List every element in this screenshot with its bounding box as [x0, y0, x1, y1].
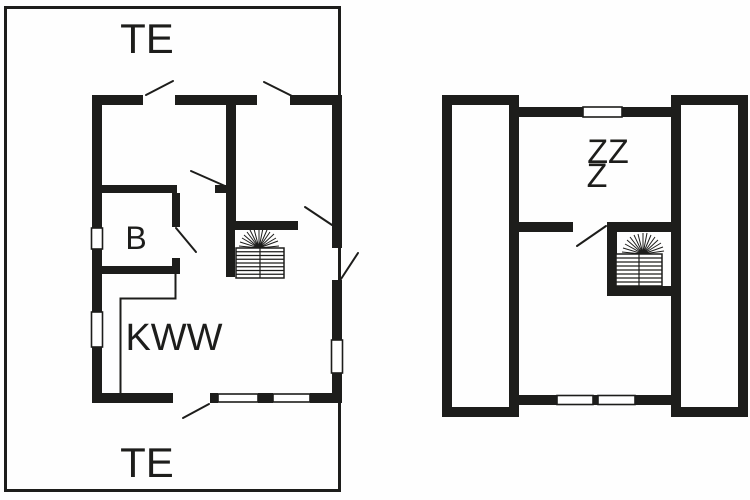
wall-segment: [92, 249, 102, 312]
wall-segment: [226, 105, 236, 230]
door-swing: [341, 253, 358, 279]
door-swing: [191, 171, 225, 186]
wall-segment: [509, 95, 519, 417]
thin-partition-line: [121, 298, 177, 300]
wall-segment: [226, 230, 235, 277]
wall-segment: [210, 393, 218, 403]
window: [273, 394, 310, 402]
upper-floor-door-swings: [577, 226, 606, 246]
room-label-bedrooms-line2: Z: [587, 157, 608, 195]
wall-segment: [332, 95, 342, 248]
thin-partition-line: [120, 298, 122, 394]
room-label-kitchen-living: KWW: [125, 317, 222, 359]
wall-segment: [671, 407, 748, 417]
window: [92, 228, 103, 249]
wall-segment: [310, 393, 342, 403]
wall-segment: [258, 393, 273, 403]
wall-segment: [607, 222, 681, 232]
stair-winder-fan: [239, 228, 279, 248]
wall-segment: [738, 95, 748, 417]
upper-floor-left-wing: [442, 95, 519, 417]
stair-winder-fan: [622, 233, 664, 254]
wall-segment: [622, 107, 671, 117]
door-swing: [183, 404, 209, 418]
window: [583, 107, 622, 117]
wall-segment: [332, 280, 342, 340]
upper-floor-plan: ZZ Z: [442, 95, 748, 417]
wall-segment: [442, 95, 452, 417]
wall-segment: [509, 395, 557, 405]
wall-segment: [175, 95, 257, 105]
wall-segment: [671, 95, 748, 105]
window: [557, 396, 593, 405]
window: [218, 394, 258, 402]
door-swing: [146, 81, 173, 95]
door-swing: [264, 82, 292, 96]
room-label-bathroom: B: [125, 220, 146, 256]
wall-segment: [635, 395, 681, 405]
wall-segment: [92, 266, 180, 274]
wall-segment: [92, 185, 177, 193]
wall-segment: [92, 393, 173, 403]
wall-segment: [172, 193, 180, 227]
room-label-terrace-top: TE: [120, 15, 174, 62]
staircase-icon: [236, 228, 284, 278]
upper-floor-right-wing: [671, 95, 748, 417]
door-swing: [577, 226, 606, 246]
wall-segment: [442, 407, 519, 417]
wall-segment: [509, 222, 573, 232]
terrain-boundary: [6, 8, 340, 491]
door-swing: [305, 207, 332, 225]
staircase-icon: [616, 233, 664, 286]
window: [92, 312, 103, 347]
window: [598, 396, 635, 405]
thin-partition-line: [175, 274, 177, 299]
wall-segment: [519, 107, 583, 117]
room-label-terrace-bottom: TE: [120, 439, 174, 486]
wall-segment: [92, 95, 102, 228]
window: [332, 340, 343, 373]
wall-segment: [607, 286, 681, 296]
wall-segment: [226, 221, 298, 230]
wall-segment: [671, 95, 681, 417]
ground-floor-plan: TE TE: [6, 8, 359, 491]
floorplan-drawing: TE TE: [0, 0, 750, 500]
floorplan-svg: TE TE: [0, 0, 750, 500]
door-swing: [176, 228, 196, 252]
wall-segment: [442, 95, 519, 105]
